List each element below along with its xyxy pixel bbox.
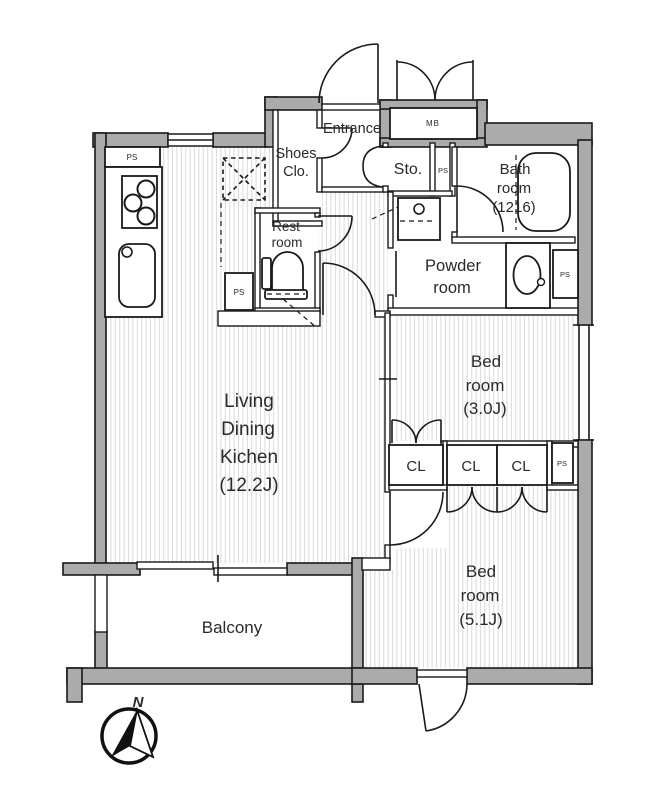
wall-top-entrance [265, 97, 322, 110]
label-balcony: Balcony [202, 618, 263, 637]
wall-restroom-top [255, 208, 320, 213]
label-powder-1: Powder [425, 257, 481, 275]
wall-closet-row-bottom-right [547, 485, 578, 490]
vanity-basin [514, 256, 541, 294]
wall-balcony-corner-stub [67, 668, 82, 702]
entrance-door-arc [319, 44, 378, 103]
wall-bedroom5-jog [362, 558, 390, 570]
label-bathroom-2: room [497, 180, 531, 197]
wall-restroom-right-lower [315, 252, 320, 313]
label-bedroom3-1: Bed [471, 352, 501, 371]
wall-storage-right [430, 143, 435, 196]
entrance-step [322, 187, 385, 192]
label-closet-3: CL [511, 458, 530, 475]
mb-door-arc-left [397, 62, 435, 100]
label-ps-kitchen-lower: PS [234, 288, 245, 297]
compass [102, 709, 156, 763]
sliding-door-panel-left [137, 562, 213, 569]
label-ldk-3: Kichen [220, 447, 278, 468]
bedroom5-exterior-door-arc [426, 684, 467, 731]
toilet-cistern [262, 258, 271, 289]
floor-plan-canvas: Entrance Shoes Clo. Sto. MB Bath room (1… [0, 0, 670, 800]
label-bedroom3-2: room [466, 376, 505, 395]
label-closet-1: CL [406, 458, 425, 475]
label-shoes-closet-2: Clo. [283, 164, 309, 180]
wall-entrance-right-lower [383, 186, 388, 192]
label-shoes-closet-1: Shoes [275, 146, 316, 162]
wall-bath-left-upper [452, 147, 457, 186]
label-restroom-1: Rest [272, 219, 300, 234]
label-bathroom-3: (1216) [492, 199, 535, 216]
label-ps-powder: PS [560, 270, 570, 279]
floor-hall [322, 192, 388, 313]
floor-bedroom5-west [363, 570, 393, 668]
label-bedroom5-2: room [461, 586, 500, 605]
label-closet-2: CL [461, 458, 480, 475]
sink-faucet [122, 247, 132, 257]
washer-faucet [414, 204, 424, 214]
label-ps-closet-row: PS [557, 459, 567, 468]
wall-bedroom5-bottom-right [467, 668, 592, 684]
wall-shoesclo-divider-upper [317, 110, 322, 128]
counter-below-restroom [218, 311, 320, 326]
sliding-door-panel-right [214, 568, 287, 575]
wall-balcony-bottom [67, 668, 360, 684]
label-bedroom5-1: Bed [466, 562, 496, 581]
bedroom5-exterior-sill [417, 670, 467, 677]
wall-balcony-left-lower [95, 631, 107, 670]
label-meter-box: MB [426, 119, 440, 128]
wall-powder-bottom [388, 308, 578, 315]
wall-top-kitchen-right [213, 133, 267, 147]
balcony-parapet-left [95, 575, 107, 632]
label-ldk-4: (12.2J) [219, 475, 278, 496]
wall-restroom-left [255, 208, 260, 313]
mb-door-arc-right [435, 62, 473, 100]
wall-entrance-right-upper [383, 143, 388, 147]
label-ps-kitchen: PS [127, 153, 138, 162]
bedroom5-exterior-door-leaf [419, 684, 426, 731]
wall-bedroom5-bottom-left [352, 668, 417, 684]
label-bedroom3-3: (3.0J) [463, 399, 506, 418]
wall-storage-bottom [388, 191, 452, 196]
label-bathroom-1: Bath [500, 161, 531, 178]
wall-shoesclo-divider-lower [317, 158, 322, 192]
wall-ldk-bottom-left [63, 563, 140, 575]
label-storage: Sto. [394, 161, 422, 178]
floor-bedroom5-door-nook [390, 487, 447, 548]
label-ldk-2: Dining [221, 419, 275, 440]
entrance-sill [322, 104, 380, 110]
toilet-bowl [272, 252, 303, 293]
label-powder-2: room [433, 279, 471, 297]
label-bedroom5-3: (5.1J) [459, 610, 502, 629]
label-restroom-2: room [272, 235, 303, 250]
label-ps-storage: PS [438, 166, 448, 175]
wall-top-right-section [485, 123, 592, 145]
wall-ldk-bottom-right [287, 563, 362, 575]
floor-plan: Entrance Shoes Clo. Sto. MB Bath room (1… [0, 0, 670, 800]
label-north: N [133, 694, 145, 711]
wall-hall-powder-upper [388, 192, 393, 248]
vanity-faucet [538, 279, 545, 286]
label-entrance: Entrance [323, 121, 381, 137]
label-ldk-1: Living [224, 391, 274, 412]
